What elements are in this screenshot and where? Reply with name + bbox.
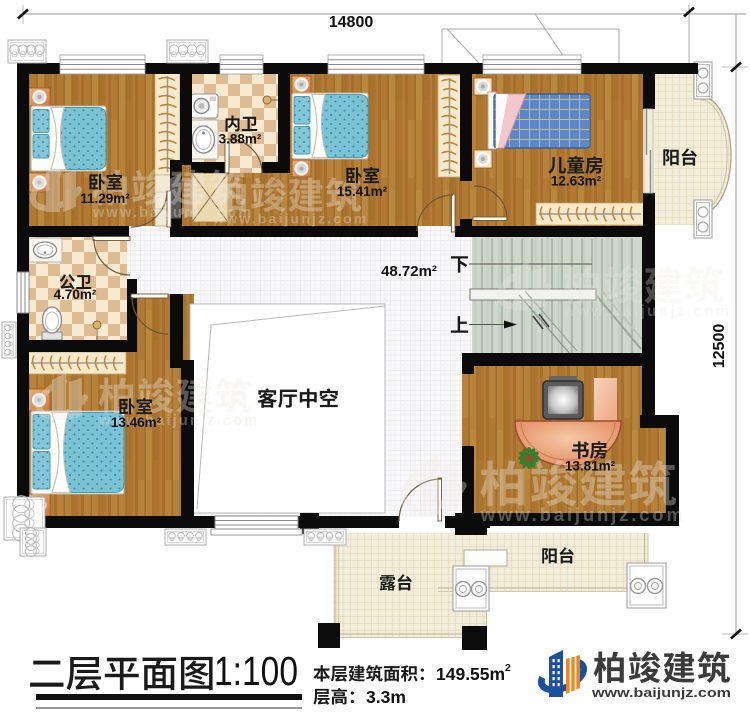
svg-text:3.3m: 3.3m xyxy=(366,687,406,707)
svg-text:11.29m²: 11.29m² xyxy=(80,191,130,206)
svg-text:15.41m²: 15.41m² xyxy=(337,184,388,199)
svg-text:www.baijunjz.com: www.baijunjz.com xyxy=(212,210,368,226)
svg-text:13.46m²: 13.46m² xyxy=(111,415,162,430)
svg-text:www.baijunjz.com: www.baijunjz.com xyxy=(562,303,731,320)
svg-text:14800: 14800 xyxy=(329,14,374,31)
svg-text:13.81m²: 13.81m² xyxy=(565,459,616,474)
svg-text:3.88m²: 3.88m² xyxy=(219,132,262,147)
svg-text:149.55m: 149.55m xyxy=(436,664,505,684)
svg-text:48.72m²: 48.72m² xyxy=(381,263,437,280)
svg-text:www.baijunjz.com: www.baijunjz.com xyxy=(591,685,731,700)
svg-text:12500: 12500 xyxy=(711,324,728,369)
svg-text:www.baijunjz.com: www.baijunjz.com xyxy=(480,504,686,525)
svg-text:1:100: 1:100 xyxy=(214,648,298,694)
svg-text:2: 2 xyxy=(505,662,511,674)
svg-text:12.63m²: 12.63m² xyxy=(551,174,602,189)
svg-text:4.70m²: 4.70m² xyxy=(54,287,97,302)
